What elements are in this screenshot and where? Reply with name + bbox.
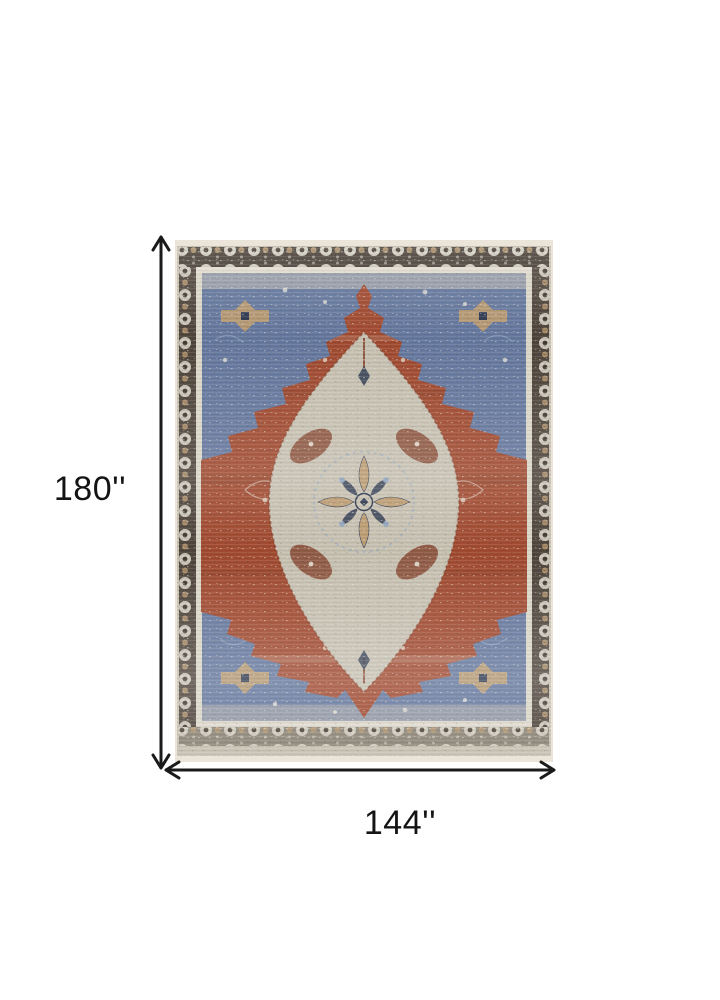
product-dimension-diagram: 180'' 144'' [0,0,720,1000]
width-dimension-label: 144'' [329,804,471,843]
rug-texture-overlay [177,246,551,756]
rug-image [175,240,553,762]
oriental-medallion-rug-graphic [175,240,553,762]
horizontal-dimension-arrow [160,756,560,786]
height-dimension-label: 180'' [44,470,136,509]
vertical-dimension-arrow [147,230,177,775]
